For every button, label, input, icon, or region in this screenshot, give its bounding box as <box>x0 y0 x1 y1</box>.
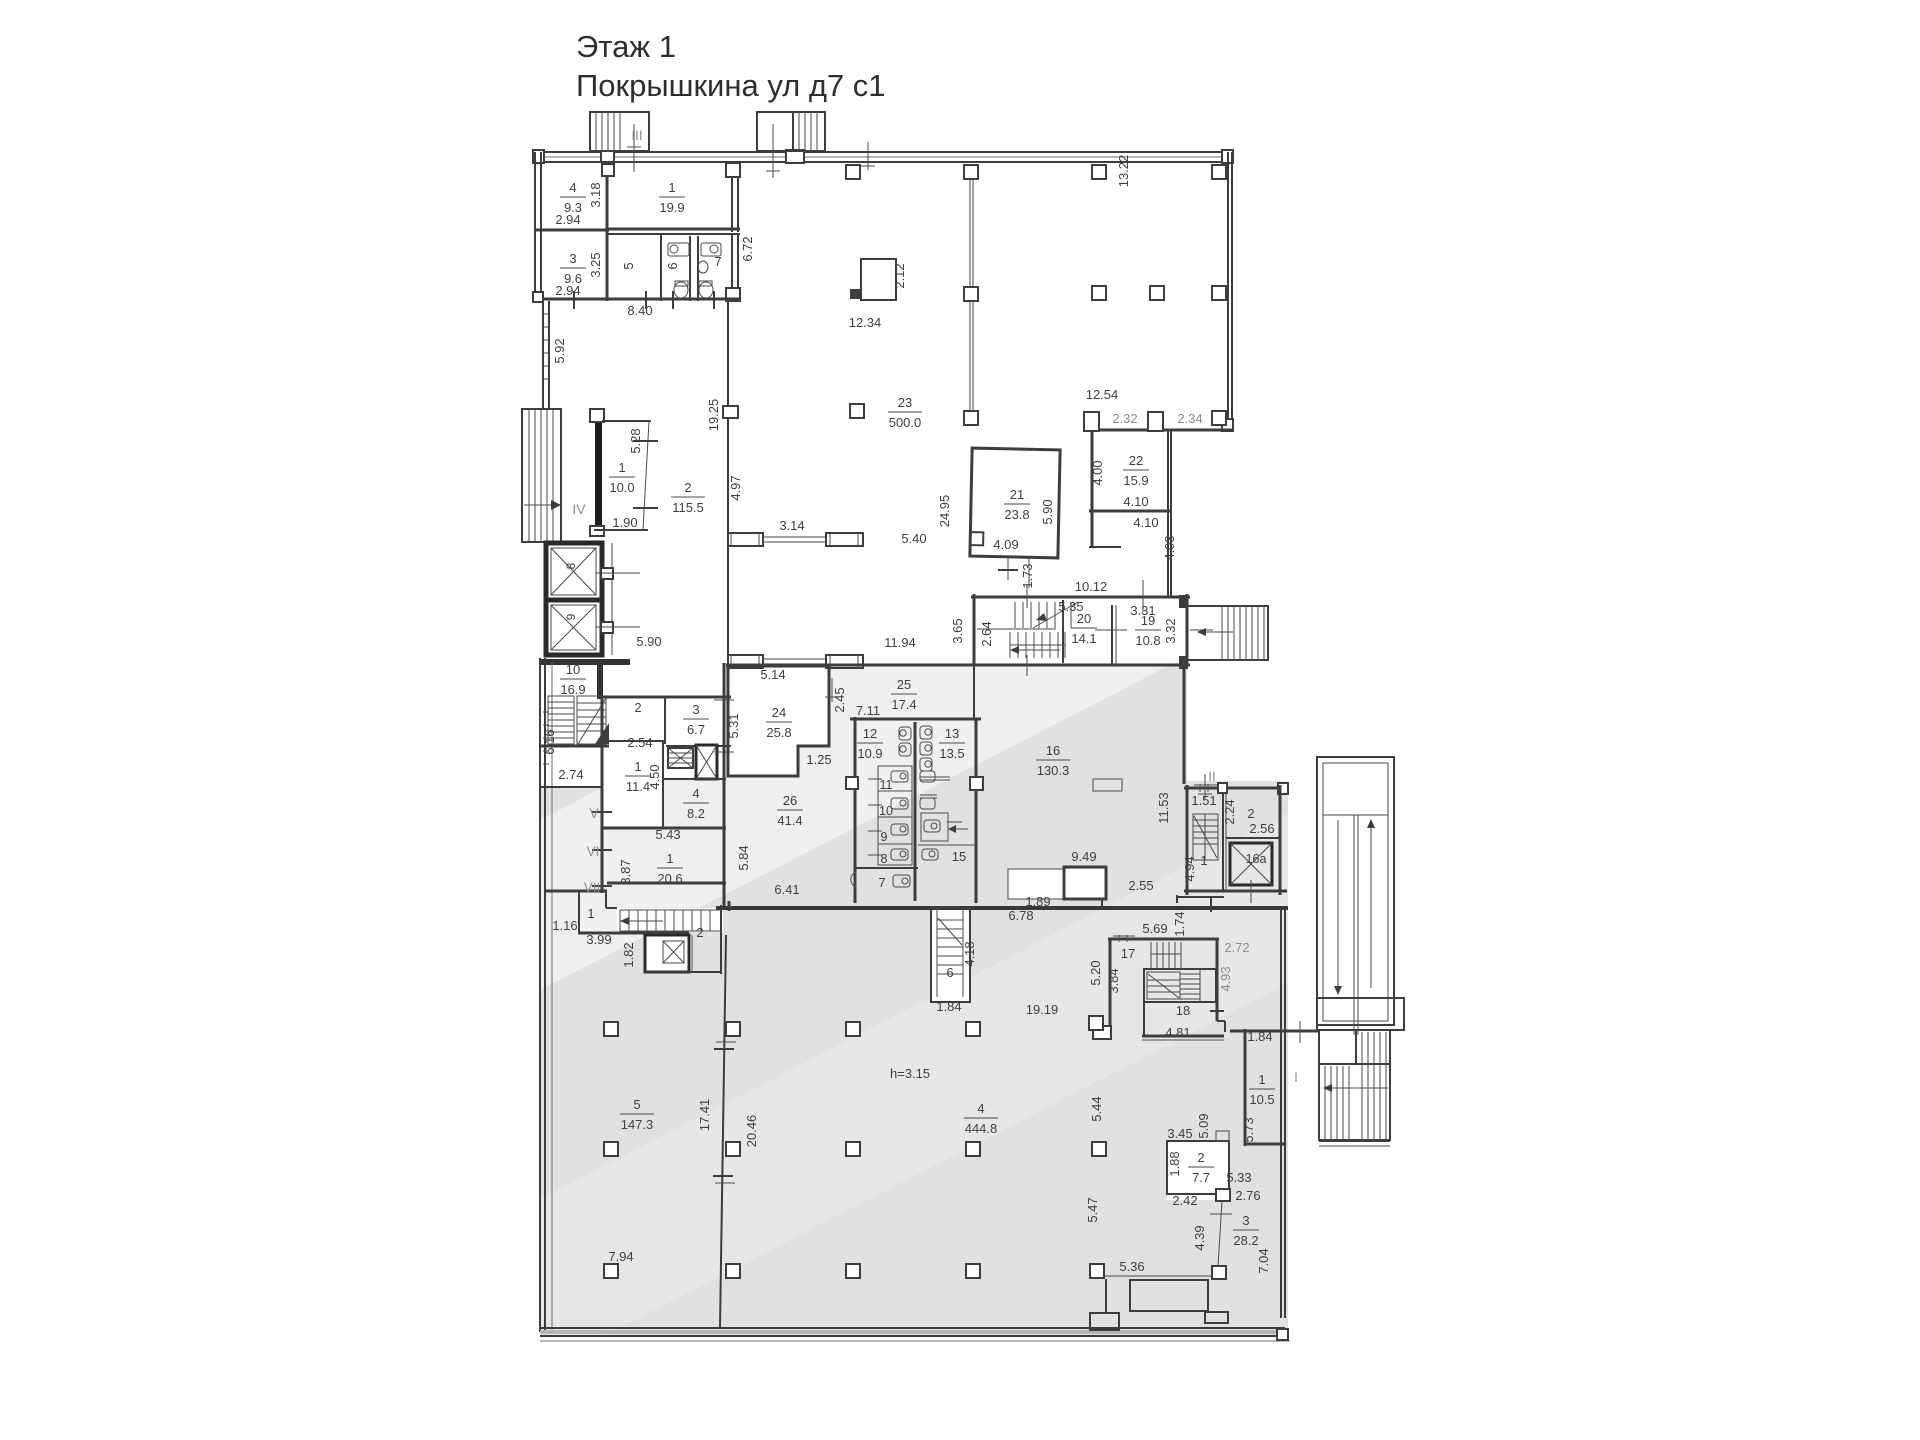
svg-text:1.82: 1.82 <box>621 942 636 967</box>
svg-text:6.72: 6.72 <box>740 236 755 261</box>
svg-text:3: 3 <box>1242 1213 1249 1228</box>
svg-text:5.47: 5.47 <box>1085 1197 1100 1222</box>
svg-text:17: 17 <box>1121 946 1135 961</box>
svg-text:24: 24 <box>772 705 786 720</box>
svg-text:19.25: 19.25 <box>706 399 721 432</box>
svg-text:4: 4 <box>569 180 576 195</box>
svg-text:16: 16 <box>1046 743 1060 758</box>
svg-text:5.90: 5.90 <box>1040 499 1055 524</box>
svg-text:12.54: 12.54 <box>1086 387 1119 402</box>
svg-text:10.0: 10.0 <box>609 480 634 495</box>
svg-text:3: 3 <box>692 702 699 717</box>
svg-text:147.3: 147.3 <box>621 1117 654 1132</box>
svg-text:1: 1 <box>1200 853 1207 868</box>
svg-text:II: II <box>1208 769 1216 784</box>
svg-text:2.55: 2.55 <box>1128 878 1153 893</box>
svg-text:4.18: 4.18 <box>962 941 977 966</box>
svg-text:1: 1 <box>587 906 594 921</box>
svg-text:5.43: 5.43 <box>655 827 680 842</box>
svg-text:23.8: 23.8 <box>1004 507 1029 522</box>
svg-text:130.3: 130.3 <box>1037 763 1070 778</box>
svg-text:6.78: 6.78 <box>1008 908 1033 923</box>
svg-text:6.16: 6.16 <box>542 729 557 754</box>
svg-text:5.28: 5.28 <box>628 428 643 453</box>
svg-text:h=3.15: h=3.15 <box>890 1066 930 1081</box>
svg-text:19.19: 19.19 <box>1026 1002 1059 1017</box>
svg-text:6: 6 <box>665 262 680 269</box>
svg-text:1: 1 <box>1258 1072 1265 1087</box>
svg-text:10: 10 <box>879 804 893 818</box>
svg-text:Покрышкина ул д7 с1: Покрышкина ул д7 с1 <box>576 68 886 103</box>
svg-text:20.46: 20.46 <box>744 1115 759 1148</box>
svg-text:4.81: 4.81 <box>1165 1025 1190 1040</box>
svg-text:10: 10 <box>566 662 580 677</box>
svg-text:1: 1 <box>618 460 625 475</box>
svg-text:1: 1 <box>634 759 641 774</box>
svg-text:VI: VI <box>587 844 600 859</box>
svg-text:3.84: 3.84 <box>1106 968 1121 993</box>
svg-text:2.42: 2.42 <box>1172 1193 1197 1208</box>
svg-text:18: 18 <box>1176 1003 1190 1018</box>
svg-text:4.93: 4.93 <box>1218 966 1233 991</box>
svg-text:500.0: 500.0 <box>889 415 922 430</box>
svg-text:23: 23 <box>898 395 912 410</box>
svg-text:7.04: 7.04 <box>1256 1248 1271 1273</box>
svg-text:115.5: 115.5 <box>672 500 704 515</box>
svg-text:5.31: 5.31 <box>726 713 741 738</box>
svg-text:10.12: 10.12 <box>1075 579 1108 594</box>
svg-text:2.45: 2.45 <box>832 687 847 712</box>
svg-text:24.95: 24.95 <box>937 495 952 528</box>
svg-text:2.76: 2.76 <box>1235 1188 1260 1203</box>
svg-text:2.54: 2.54 <box>627 735 652 750</box>
svg-text:11.94: 11.94 <box>884 635 916 650</box>
svg-text:V: V <box>589 806 598 821</box>
svg-text:10.5: 10.5 <box>1249 1092 1274 1107</box>
svg-text:IV: IV <box>572 501 586 517</box>
svg-text:2.94: 2.94 <box>555 212 580 227</box>
svg-text:10.9: 10.9 <box>857 746 882 761</box>
svg-text:26: 26 <box>783 793 797 808</box>
svg-text:1.88: 1.88 <box>1167 1151 1182 1176</box>
svg-text:5.35: 5.35 <box>1058 599 1083 614</box>
svg-text:7: 7 <box>878 875 885 890</box>
svg-text:6.7: 6.7 <box>687 722 705 737</box>
svg-text:19.9: 19.9 <box>659 200 684 215</box>
svg-text:9: 9 <box>881 830 888 844</box>
svg-text:3.65: 3.65 <box>950 618 965 643</box>
svg-text:2: 2 <box>684 480 691 495</box>
svg-text:1: 1 <box>666 851 673 866</box>
svg-text:15.9: 15.9 <box>1123 473 1148 488</box>
svg-text:5: 5 <box>633 1097 640 1112</box>
svg-text:9.49: 9.49 <box>1071 849 1096 864</box>
svg-text:2.56: 2.56 <box>1249 821 1274 836</box>
svg-text:4: 4 <box>977 1101 984 1116</box>
svg-text:6: 6 <box>946 965 953 980</box>
svg-text:5.14: 5.14 <box>760 667 785 682</box>
svg-text:3: 3 <box>569 251 576 266</box>
svg-text:5.44: 5.44 <box>1089 1096 1104 1121</box>
svg-text:16а: 16а <box>1246 852 1267 866</box>
svg-text:7.11: 7.11 <box>856 703 880 718</box>
svg-text:2.34: 2.34 <box>1177 411 1202 426</box>
svg-text:VII: VII <box>584 880 601 895</box>
svg-text:21: 21 <box>1010 487 1024 502</box>
svg-text:22: 22 <box>1129 453 1143 468</box>
svg-text:2: 2 <box>1197 1150 1204 1165</box>
svg-text:2.24: 2.24 <box>1222 799 1237 824</box>
svg-text:3.14: 3.14 <box>779 518 804 533</box>
svg-text:3.32: 3.32 <box>1163 618 1178 643</box>
svg-text:28.2: 28.2 <box>1233 1233 1258 1248</box>
svg-text:7: 7 <box>714 254 721 269</box>
svg-text:6.41: 6.41 <box>774 882 799 897</box>
svg-text:11: 11 <box>880 778 893 792</box>
svg-text:8.40: 8.40 <box>627 303 652 318</box>
svg-text:4.97: 4.97 <box>728 475 743 500</box>
svg-text:5: 5 <box>621 262 636 269</box>
svg-text:13.5: 13.5 <box>939 746 964 761</box>
svg-text:4.50: 4.50 <box>647 764 662 789</box>
svg-text:4.94: 4.94 <box>1182 856 1197 881</box>
svg-text:13: 13 <box>945 726 959 741</box>
svg-text:2.74: 2.74 <box>558 767 583 782</box>
svg-text:3.87: 3.87 <box>618 859 633 884</box>
svg-text:5.09: 5.09 <box>1196 1113 1211 1138</box>
svg-text:2: 2 <box>1247 806 1254 821</box>
svg-text:2.64: 2.64 <box>979 621 994 646</box>
svg-text:5.90: 5.90 <box>636 634 661 649</box>
svg-text:5.33: 5.33 <box>1226 1170 1251 1185</box>
svg-text:3.25: 3.25 <box>588 252 603 277</box>
svg-text:10.8: 10.8 <box>1135 633 1160 648</box>
svg-text:14.1: 14.1 <box>1071 631 1096 646</box>
svg-text:2.72: 2.72 <box>1224 940 1249 955</box>
svg-text:2.12: 2.12 <box>892 263 907 288</box>
svg-text:15: 15 <box>952 849 966 864</box>
svg-text:5.20: 5.20 <box>1088 960 1103 985</box>
svg-text:4.03: 4.03 <box>1162 535 1177 560</box>
svg-text:444.8: 444.8 <box>965 1121 998 1136</box>
svg-text:I: I <box>1294 1070 1298 1085</box>
svg-text:11.53: 11.53 <box>1156 792 1171 824</box>
svg-text:25.8: 25.8 <box>766 725 791 740</box>
svg-text:4.10: 4.10 <box>1123 494 1148 509</box>
svg-text:4.39: 4.39 <box>1192 1225 1207 1250</box>
svg-text:41.4: 41.4 <box>777 813 802 828</box>
svg-text:12.34: 12.34 <box>849 315 882 330</box>
svg-text:8: 8 <box>881 852 888 866</box>
svg-text:5.69: 5.69 <box>1142 921 1167 936</box>
svg-text:2: 2 <box>634 700 641 715</box>
svg-text:1.89: 1.89 <box>1025 894 1050 909</box>
svg-text:3.45: 3.45 <box>1167 1126 1192 1141</box>
svg-text:4.10: 4.10 <box>1133 515 1158 530</box>
svg-text:Этаж 1: Этаж 1 <box>576 29 676 64</box>
svg-text:2.32: 2.32 <box>1112 411 1137 426</box>
svg-text:4.09: 4.09 <box>993 537 1018 552</box>
svg-text:1.73: 1.73 <box>1020 563 1035 588</box>
svg-text:3.31: 3.31 <box>1130 603 1155 618</box>
svg-text:3.99: 3.99 <box>586 932 611 947</box>
svg-text:1.84: 1.84 <box>1247 1029 1272 1044</box>
svg-text:1.84: 1.84 <box>936 999 961 1014</box>
svg-text:5.73: 5.73 <box>1241 1117 1256 1142</box>
svg-text:9: 9 <box>564 613 578 620</box>
svg-text:5.92: 5.92 <box>552 338 567 363</box>
svg-text:1.16: 1.16 <box>552 918 577 933</box>
svg-text:1.74: 1.74 <box>1172 911 1187 936</box>
svg-text:8: 8 <box>564 562 578 569</box>
svg-text:III: III <box>631 128 642 143</box>
svg-text:17.4: 17.4 <box>891 697 916 712</box>
svg-text:7.7: 7.7 <box>1192 1170 1210 1185</box>
svg-text:5.36: 5.36 <box>1119 1259 1144 1274</box>
svg-text:12: 12 <box>863 726 877 741</box>
svg-text:4: 4 <box>692 786 699 801</box>
svg-text:1.51: 1.51 <box>1191 793 1216 808</box>
svg-text:5.84: 5.84 <box>736 845 751 870</box>
svg-text:25: 25 <box>897 677 911 692</box>
svg-text:3.18: 3.18 <box>588 182 603 207</box>
svg-text:1.90: 1.90 <box>612 515 637 530</box>
svg-text:2.94: 2.94 <box>555 283 580 298</box>
svg-text:13.22: 13.22 <box>1116 155 1131 188</box>
svg-text:20.6: 20.6 <box>657 871 682 886</box>
svg-text:7.94: 7.94 <box>608 1249 633 1264</box>
svg-text:16.9: 16.9 <box>560 682 585 697</box>
svg-text:2: 2 <box>696 925 703 940</box>
svg-text:1.25: 1.25 <box>806 752 831 767</box>
svg-text:8.2: 8.2 <box>687 806 705 821</box>
svg-text:5.40: 5.40 <box>901 531 926 546</box>
svg-text:1: 1 <box>668 180 675 195</box>
svg-text:17.41: 17.41 <box>697 1099 712 1132</box>
svg-text:4.00: 4.00 <box>1090 460 1105 485</box>
